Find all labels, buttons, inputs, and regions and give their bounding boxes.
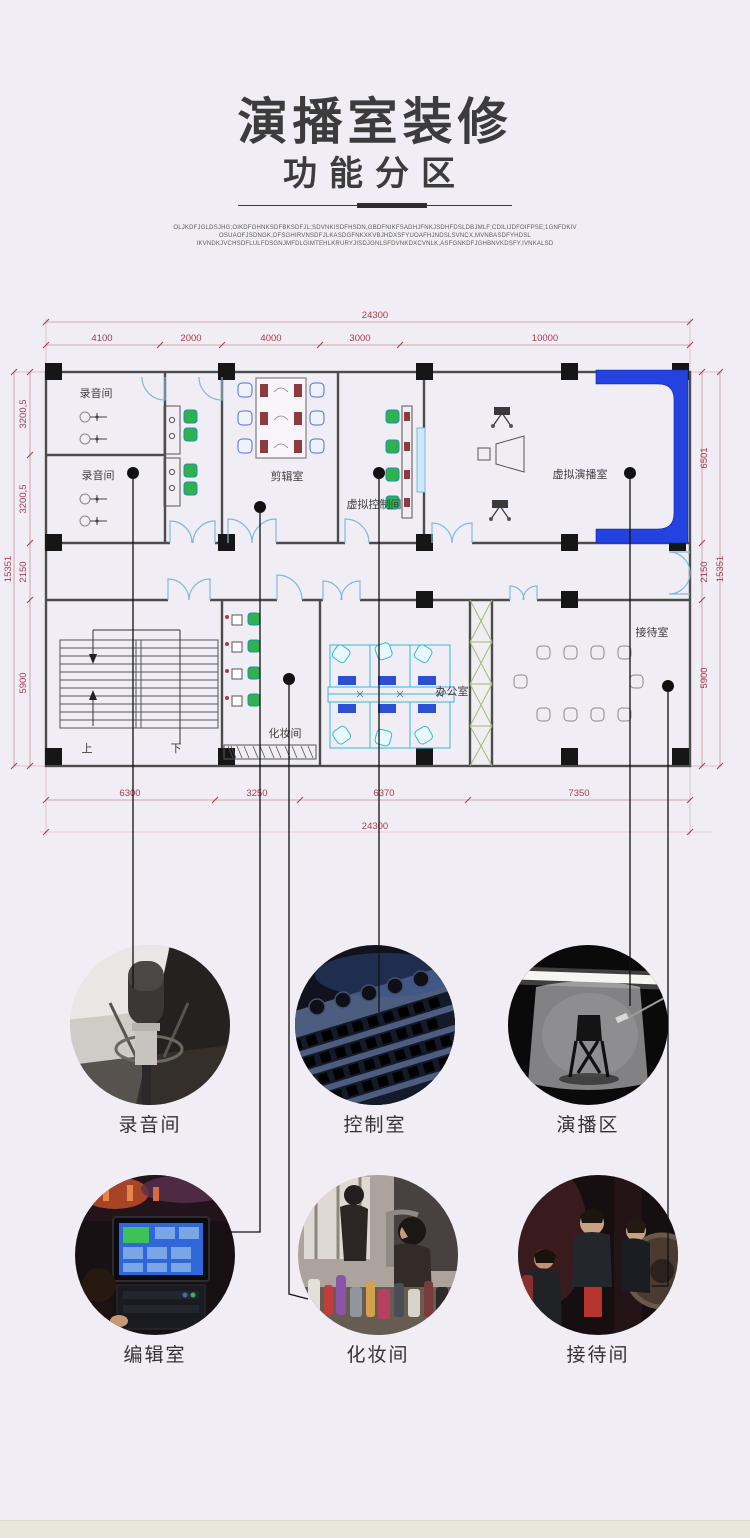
photo-reception-room bbox=[518, 1175, 678, 1335]
mirror-counter-hatch bbox=[228, 746, 313, 758]
dimension-labels: 24300 4100 2000 4000 3000 10000 6300 325… bbox=[3, 310, 726, 832]
dim-left-total: 15351 bbox=[3, 556, 14, 582]
label-control-room: 控制室 bbox=[275, 1110, 475, 1137]
editing-room-table bbox=[238, 378, 324, 458]
room-label-recording-1: 录音间 bbox=[80, 386, 113, 400]
dim-top-total: 24300 bbox=[362, 310, 388, 321]
makeup-stations bbox=[224, 613, 316, 759]
photo-recording-room-illustration bbox=[70, 945, 230, 1105]
filler-line-2: OSUAOFJSDNGK,DFSGHIRVNSDFJLKASDGFNKXKVBJ… bbox=[115, 232, 635, 240]
photo-editing-room-illustration bbox=[75, 1175, 235, 1335]
dim-bottom-4: 7350 bbox=[568, 788, 589, 799]
camera-icon bbox=[489, 407, 513, 521]
photo-makeup-room-illustration bbox=[298, 1175, 458, 1335]
prompter-icon bbox=[478, 436, 524, 472]
guest-right bbox=[622, 1219, 650, 1293]
virtual-control-desks bbox=[386, 406, 425, 518]
dimension-extension-lines bbox=[14, 318, 722, 836]
photo-control-room-illustration bbox=[295, 945, 455, 1105]
photo-reception-room-illustration bbox=[518, 1175, 678, 1335]
equipment-rack bbox=[117, 1285, 205, 1329]
dim-top-5: 10000 bbox=[532, 333, 558, 344]
filler-line-1: OLJKDFJGLDSJHG;OIKDFGHNKSDFBKSDFJL;SDVNK… bbox=[115, 224, 635, 232]
dim-right-3: 5900 bbox=[699, 667, 710, 688]
dim-right-1: 6501 bbox=[699, 447, 710, 468]
booth-desks bbox=[164, 406, 197, 506]
room-label-virtual-control: 虚拟控制间 bbox=[347, 497, 402, 511]
stairs bbox=[60, 630, 218, 744]
dim-left-1: 3200,5 bbox=[18, 399, 29, 428]
callout-dots bbox=[127, 467, 674, 692]
cyclorama-backdrop bbox=[596, 370, 688, 543]
dimension-ticks bbox=[11, 319, 723, 835]
dim-left-3: 2150 bbox=[18, 561, 29, 582]
dim-right-2: 2150 bbox=[699, 561, 710, 582]
dim-bottom-3: 6370 bbox=[373, 788, 394, 799]
page-title: 演播室装修 bbox=[0, 82, 750, 154]
page-bottom-texture bbox=[0, 1520, 750, 1538]
photo-studio-area-illustration bbox=[508, 945, 668, 1105]
plan-doors bbox=[142, 377, 690, 600]
title-divider bbox=[238, 203, 512, 208]
dim-bottom-1: 6300 bbox=[119, 788, 140, 799]
photo-control-room bbox=[295, 945, 455, 1105]
stairs-down-label: 下 bbox=[171, 743, 182, 755]
room-label-virtual-studio: 虚拟演播室 bbox=[553, 467, 608, 481]
photo-studio-area bbox=[508, 945, 668, 1105]
dimension-lines bbox=[14, 322, 720, 800]
dim-bottom-total: 24300 bbox=[362, 821, 388, 832]
dim-top-4: 3000 bbox=[349, 333, 370, 344]
dim-right-total: 15351 bbox=[715, 556, 726, 582]
room-labels: 录音间 录音间 剪辑室 虚拟控制间 虚拟演播室 化妆间 办公室 接待室 上 下 bbox=[80, 386, 669, 755]
photo-recording-room bbox=[70, 945, 230, 1105]
dim-top-1: 4100 bbox=[91, 333, 112, 344]
plan-columns bbox=[45, 363, 689, 765]
stairs-arrows bbox=[89, 654, 97, 700]
page-subtitle: 功能分区 bbox=[0, 146, 750, 195]
photo-editing-room bbox=[75, 1175, 235, 1335]
editing-monitor bbox=[113, 1217, 209, 1281]
dim-left-4: 5900 bbox=[18, 672, 29, 693]
plan-walls bbox=[46, 372, 690, 766]
mic-icon bbox=[80, 412, 107, 526]
label-editing-room: 编辑室 bbox=[55, 1340, 255, 1367]
intro-filler-text: OLJKDFJGLDSJHG;OIKDFGHNKSDFBKSDFJL;SDVNK… bbox=[115, 224, 635, 248]
dim-top-3: 4000 bbox=[260, 333, 281, 344]
office-cubicles bbox=[328, 642, 454, 748]
stylist-figure bbox=[340, 1185, 368, 1261]
divider-thick-segment bbox=[357, 203, 427, 208]
lattice-column bbox=[470, 600, 492, 766]
room-label-office: 办公室 bbox=[436, 684, 469, 698]
label-recording-room: 录音间 bbox=[50, 1110, 250, 1137]
label-makeup-room: 化妆间 bbox=[278, 1340, 478, 1367]
label-studio-area: 演播区 bbox=[488, 1110, 688, 1137]
dim-left-2: 3200,5 bbox=[18, 484, 29, 513]
room-label-reception: 接待室 bbox=[636, 625, 669, 639]
dim-bottom-2: 3250 bbox=[246, 788, 267, 799]
photo-makeup-room bbox=[298, 1175, 458, 1335]
dim-top-2: 2000 bbox=[180, 333, 201, 344]
stairs-up-label: 上 bbox=[82, 742, 93, 755]
room-label-makeup: 化妆间 bbox=[269, 726, 302, 740]
room-label-editing: 剪辑室 bbox=[271, 469, 304, 483]
room-label-recording-2: 录音间 bbox=[82, 468, 115, 482]
label-reception-room: 接待间 bbox=[498, 1340, 698, 1367]
reception-chairs bbox=[514, 646, 643, 721]
filler-line-3: IKVNDKJVCHSDFLULFDSGNJMFDLGIMTEHLKRURYJI… bbox=[115, 240, 635, 248]
